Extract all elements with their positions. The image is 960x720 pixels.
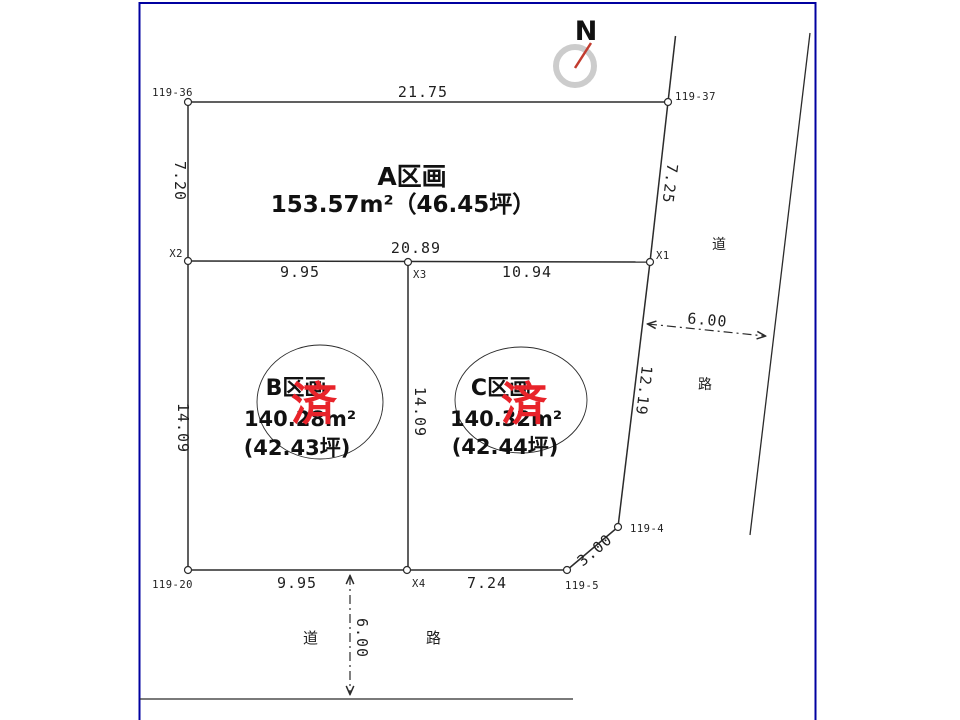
plot-a-name: A区画 — [377, 162, 446, 191]
dim-middle-b: 9.95 — [280, 263, 320, 281]
dim-bottom-c: 7.24 — [467, 574, 507, 592]
dim-bottom-road-width: 6.00 — [353, 618, 371, 658]
dim-top: 21.75 — [398, 83, 448, 101]
point-119-5-marker — [564, 567, 571, 574]
dim-middle-total: 20.89 — [391, 239, 441, 257]
point-119-37-marker — [665, 99, 672, 106]
dim-left-lower: 14.09 — [174, 403, 192, 453]
point-x3-marker — [405, 259, 412, 266]
plot-b-sold-stamp: 済 — [291, 377, 338, 431]
plot-c-area-tsubo: (42.44坪) — [452, 435, 559, 459]
boundary-middle — [188, 261, 650, 262]
point-119-4-marker — [615, 524, 622, 531]
plot-a-area: 153.57m²（46.45坪） — [271, 191, 536, 218]
dim-bottom-b: 9.95 — [277, 574, 317, 592]
point-x2-label: X2 — [169, 248, 183, 260]
point-x1-marker — [647, 259, 654, 266]
point-119-5-label: 119-5 — [565, 580, 599, 592]
point-x4-label: X4 — [412, 578, 426, 590]
dim-left-upper: 7.20 — [171, 161, 189, 201]
point-119-20-label: 119-20 — [152, 579, 193, 591]
point-119-36-label: 119-36 — [152, 87, 193, 99]
point-x3-label: X3 — [413, 269, 427, 281]
right-road-label-1: 道 — [712, 237, 726, 253]
point-119-20-marker — [185, 567, 192, 574]
land-plot-diagram: N 21.75 20.89 9.95 10.94 9.95 7.24 7.20 … — [0, 0, 960, 720]
dim-divider: 14.09 — [411, 387, 429, 437]
bottom-road-label-2: 路 — [426, 629, 441, 647]
point-x1-label: X1 — [656, 250, 670, 262]
plot-c-sold-stamp: 済 — [501, 377, 548, 431]
plot-b-area-tsubo: (42.43坪) — [244, 436, 351, 460]
bottom-road-label-1: 道 — [303, 629, 318, 647]
dim-middle-c: 10.94 — [502, 263, 552, 281]
right-road-label-2: 路 — [698, 377, 712, 393]
point-x4-marker — [404, 567, 411, 574]
point-119-37-label: 119-37 — [675, 91, 716, 103]
point-119-4-label: 119-4 — [630, 523, 664, 535]
dim-right-road-width: 6.00 — [687, 309, 729, 330]
survey-drawing: N 21.75 20.89 9.95 10.94 9.95 7.24 7.20 … — [0, 0, 960, 720]
north-label: N — [575, 16, 598, 47]
point-x2-marker — [185, 258, 192, 265]
point-119-36-marker — [185, 99, 192, 106]
page-frame — [140, 3, 816, 720]
